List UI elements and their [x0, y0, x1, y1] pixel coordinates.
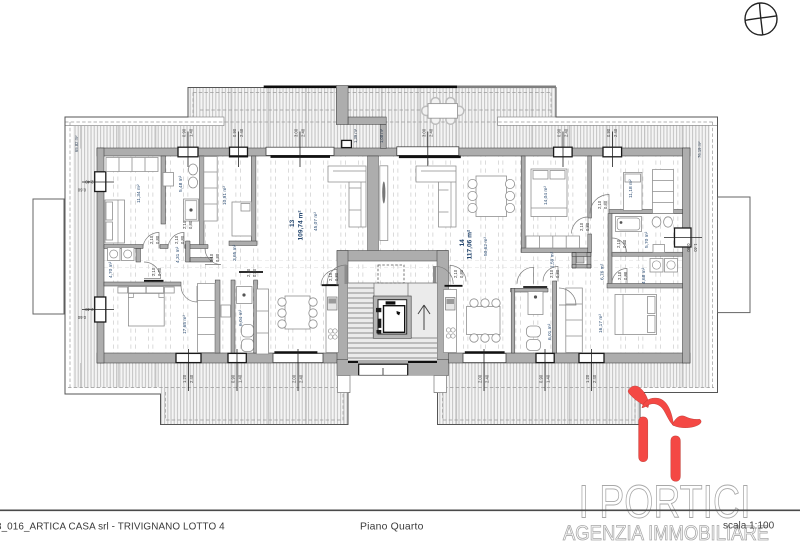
svg-text:0,80: 0,80: [603, 200, 608, 209]
svg-text:117,06 m²: 117,06 m²: [467, 229, 474, 259]
svg-text:2,10: 2,10: [246, 268, 251, 277]
svg-text:10,91 m²: 10,91 m²: [222, 186, 228, 205]
svg-text:2.00: 2.00: [292, 374, 297, 383]
svg-text:2.40: 2.40: [485, 374, 490, 383]
svg-text:45,07 m²: 45,07 m²: [313, 212, 319, 231]
svg-text:1,39 m²: 1,39 m²: [353, 128, 358, 143]
svg-text:0.60: 0.60: [77, 188, 86, 193]
svg-text:16,17 m²: 16,17 m²: [598, 314, 604, 333]
svg-text:4,68 m²: 4,68 m²: [641, 267, 647, 284]
svg-text:17,65 m²: 17,65 m²: [182, 315, 188, 334]
svg-text:11,18 m²: 11,18 m²: [628, 179, 634, 198]
svg-text:0.90: 0.90: [232, 128, 237, 137]
svg-text:Piano Quarto: Piano Quarto: [360, 522, 424, 533]
svg-text:2.40: 2.40: [239, 128, 244, 137]
svg-text:2,10: 2,10: [579, 222, 584, 231]
svg-text:2,10: 2,10: [209, 253, 214, 262]
svg-text:2.00: 2.00: [478, 374, 483, 383]
svg-text:11,34 m²: 11,34 m²: [136, 184, 142, 203]
svg-text:6,04 m²: 6,04 m²: [238, 309, 244, 326]
svg-text:2.40: 2.40: [85, 307, 94, 312]
svg-text:1,08 m²: 1,08 m²: [379, 128, 384, 143]
svg-text:1,59 m²: 1,59 m²: [550, 251, 556, 268]
svg-text:0.90: 0.90: [182, 128, 187, 137]
svg-text:13: 13: [289, 219, 296, 227]
svg-text:4,31 m²: 4,31 m²: [175, 246, 181, 263]
svg-text:3.00: 3.00: [421, 128, 426, 137]
svg-text:0,80: 0,80: [157, 267, 162, 276]
svg-text:2,10: 2,10: [151, 267, 156, 276]
svg-text:0.90: 0.90: [557, 128, 562, 137]
svg-text:2.40: 2.40: [301, 128, 306, 137]
svg-text:2.40: 2.40: [428, 128, 433, 137]
svg-text:109,74 m²: 109,74 m²: [298, 210, 305, 241]
svg-text:0,80: 0,80: [155, 235, 160, 244]
svg-text:5,70 m²: 5,70 m²: [644, 231, 650, 248]
svg-text:2.40: 2.40: [299, 374, 304, 383]
svg-text:2.40: 2.40: [613, 128, 618, 137]
svg-text:2,10: 2,10: [182, 220, 187, 229]
svg-text:0,80: 0,80: [623, 271, 628, 280]
svg-text:scala 1:100: scala 1:100: [723, 521, 775, 532]
svg-text:2.40: 2.40: [85, 180, 94, 185]
svg-text:0.90: 0.90: [231, 374, 236, 383]
svg-text:0,80: 0,80: [188, 220, 193, 229]
svg-text:3,65 m²: 3,65 m²: [232, 244, 238, 261]
svg-text:0.90: 0.90: [686, 244, 691, 253]
svg-text:2,10: 2,10: [549, 269, 554, 278]
svg-text:2.40: 2.40: [189, 374, 194, 383]
svg-text:0.90: 0.90: [539, 374, 544, 383]
svg-text:0,80: 0,80: [622, 239, 627, 248]
svg-text:3.00: 3.00: [294, 128, 299, 137]
svg-text:4,70 m²: 4,70 m²: [108, 261, 114, 278]
svg-text:0,80: 0,80: [555, 269, 560, 278]
svg-text:2,10: 2,10: [328, 272, 333, 281]
svg-text:5,48 m²: 5,48 m²: [178, 175, 184, 192]
svg-text:1.40: 1.40: [238, 374, 243, 383]
svg-text:0,80: 0,80: [459, 269, 464, 278]
svg-text:14,04 m²: 14,04 m²: [543, 186, 549, 205]
svg-text:1.40: 1.40: [693, 244, 698, 253]
svg-text:65.82 m²: 65.82 m²: [74, 135, 79, 152]
svg-text:0.90: 0.90: [606, 128, 611, 137]
svg-text:2.40: 2.40: [564, 128, 569, 137]
svg-text:0,80: 0,80: [215, 253, 220, 262]
svg-text:6,01 m²: 6,01 m²: [547, 323, 553, 340]
svg-text:0,80: 0,80: [334, 272, 339, 281]
svg-text:3_016_ARTICA CASA srl - TRIVIG: 3_016_ARTICA CASA srl - TRIVIGNANO LOTTO…: [0, 522, 225, 533]
svg-text:1.20: 1.20: [182, 374, 187, 383]
svg-text:2,10: 2,10: [174, 235, 179, 244]
svg-text:50,62 m²: 50,62 m²: [483, 237, 489, 256]
svg-text:6,76 m²: 6,76 m²: [600, 263, 606, 280]
svg-text:2,10: 2,10: [616, 239, 621, 248]
svg-text:1.40: 1.40: [546, 374, 551, 383]
svg-text:0,80: 0,80: [180, 235, 185, 244]
svg-text:76.19 m²: 76.19 m²: [697, 141, 702, 158]
svg-text:14: 14: [459, 239, 466, 247]
svg-text:1.40: 1.40: [189, 128, 194, 137]
svg-text:0,80: 0,80: [252, 268, 257, 277]
svg-text:1.20: 1.20: [585, 374, 590, 383]
svg-text:2,10: 2,10: [617, 271, 622, 280]
svg-text:0,80: 0,80: [585, 222, 590, 231]
svg-text:2,10: 2,10: [149, 235, 154, 244]
svg-text:2,10: 2,10: [453, 269, 458, 278]
svg-text:0.60: 0.60: [77, 315, 86, 320]
svg-text:2,10: 2,10: [597, 200, 602, 209]
svg-text:2.40: 2.40: [592, 374, 597, 383]
